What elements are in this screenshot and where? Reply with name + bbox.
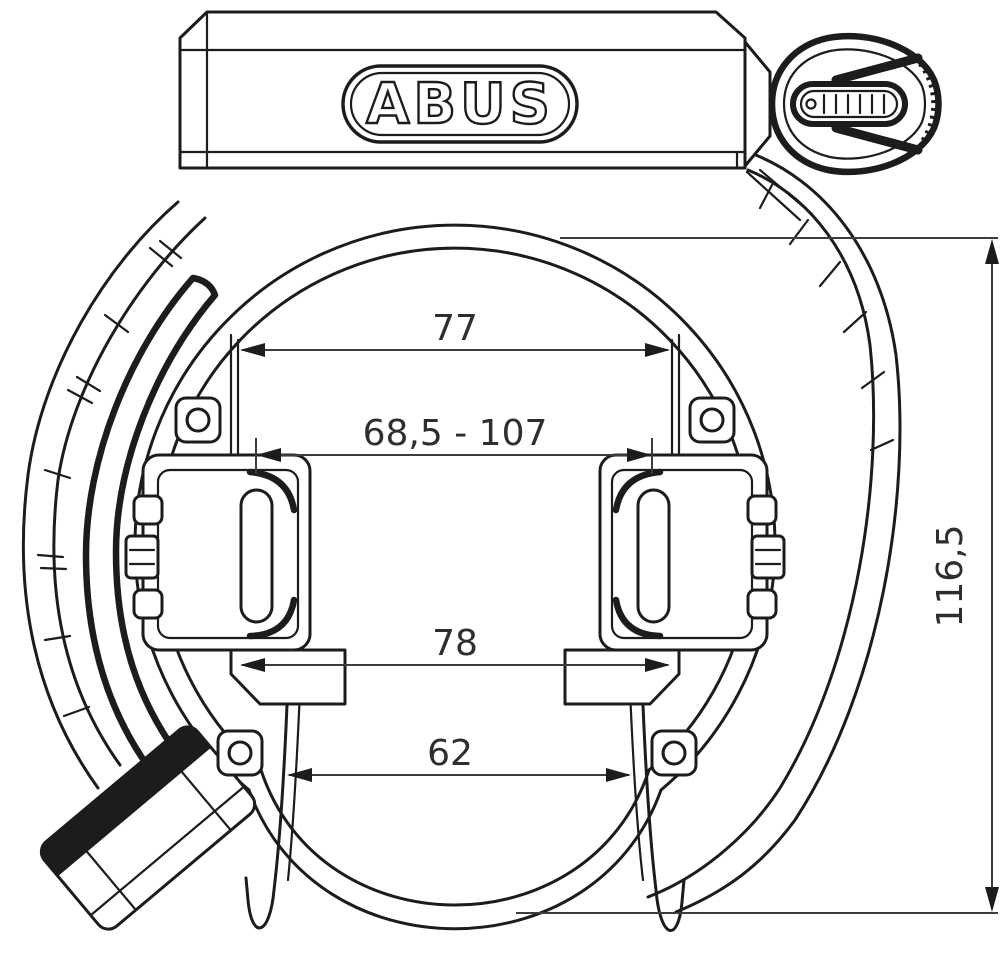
rivet-bottom-left: [218, 731, 262, 775]
right-bracket-clips: [748, 496, 784, 618]
right-mounting-bracket: [600, 455, 784, 650]
dim-overall-height-label: 116,5: [930, 524, 971, 627]
left-lower-tab: [231, 650, 345, 704]
abus-logo-text: ABUS: [366, 72, 554, 137]
rivet-bottom-right: [652, 731, 696, 775]
drawing-canvas: ABUS 77: [0, 0, 1000, 966]
abus-logo: ABUS: [343, 66, 577, 142]
lock-housing: ABUS: [180, 12, 745, 168]
dim-top-width-label: 77: [432, 308, 478, 349]
dim-opening-width: 62: [287, 733, 631, 782]
dim-mounting-range: 68,5 - 107: [256, 413, 652, 474]
slot-lower-arc: [249, 790, 661, 929]
right-lower-tab: [565, 650, 679, 704]
left-bracket-clips: [126, 496, 162, 618]
right-arm-tip: [630, 680, 684, 930]
rivet-top-left: [176, 398, 220, 442]
key-grip: [793, 84, 905, 124]
dim-mid-width-label: 78: [432, 623, 478, 664]
key-assembly: [745, 36, 939, 220]
cylinder-housing: [745, 42, 770, 166]
left-mounting-bracket: [126, 455, 310, 650]
rivet-top-right: [690, 398, 734, 442]
dim-top-width: 77: [240, 308, 670, 357]
dim-opening-width-label: 62: [427, 733, 473, 774]
dim-mounting-range-label: 68,5 - 107: [363, 413, 548, 454]
frame-lock-technical-drawing: ABUS 77: [0, 0, 1000, 966]
